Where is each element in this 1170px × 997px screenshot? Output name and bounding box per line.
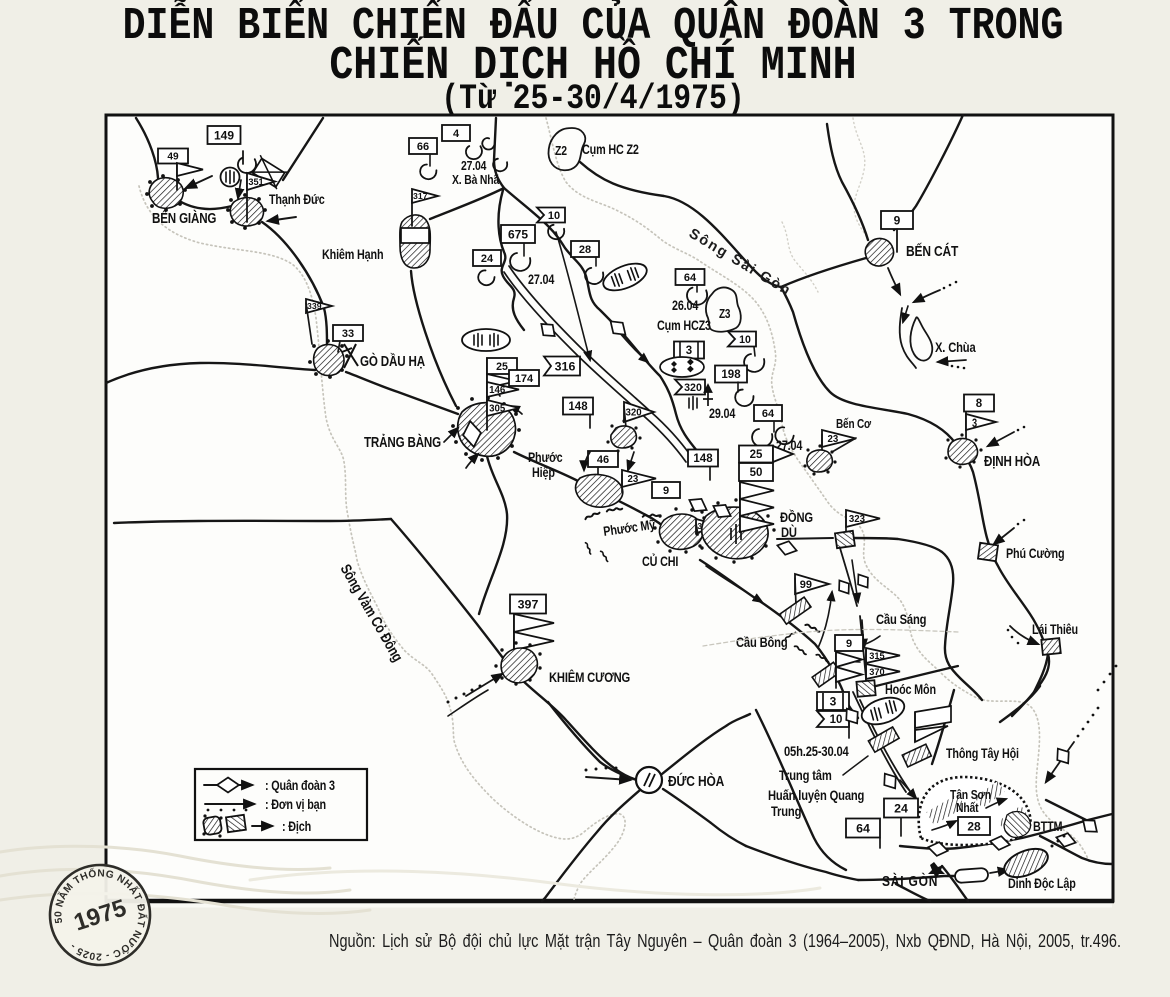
svg-text:X. Chùa: X. Chùa <box>935 340 977 355</box>
svg-text:397: 397 <box>518 598 539 612</box>
svg-text:24: 24 <box>894 802 908 816</box>
svg-text:24: 24 <box>481 253 494 265</box>
svg-text:Thạnh Đức: Thạnh Đức <box>269 192 325 207</box>
svg-text:SÀI GÒN: SÀI GÒN <box>882 873 938 890</box>
svg-text:149: 149 <box>214 128 234 142</box>
svg-text:Huấn luyện Quang: Huấn luyện Quang <box>768 788 864 803</box>
svg-text:TRẢNG BÀNG: TRẢNG BÀNG <box>364 434 441 451</box>
svg-text:27.04: 27.04 <box>461 159 487 173</box>
svg-text:8: 8 <box>976 398 983 410</box>
svg-text:Thông Tây Hội: Thông Tây Hội <box>946 746 1019 761</box>
svg-text:BẾN GIÀNG: BẾN GIÀNG <box>152 210 216 227</box>
svg-text:Dinh Độc Lập: Dinh Độc Lập <box>1008 876 1076 891</box>
svg-text:Phú Cường: Phú Cường <box>1006 546 1064 561</box>
svg-text:148: 148 <box>693 453 713 465</box>
svg-text:23: 23 <box>628 474 639 485</box>
svg-text:3: 3 <box>830 694 837 708</box>
svg-text:370: 370 <box>869 667 884 677</box>
svg-text:Cụm HCZ3: Cụm HCZ3 <box>657 318 711 333</box>
svg-text:4: 4 <box>453 128 460 140</box>
svg-text:ĐỒNG: ĐỒNG <box>780 509 813 526</box>
svg-text:Trung tâm: Trung tâm <box>779 768 832 783</box>
svg-text:(Từ 25-30/4/1975): (Từ 25-30/4/1975) <box>441 79 744 119</box>
svg-text:: Quân đoàn 3: : Quân đoàn 3 <box>265 778 335 793</box>
svg-text:X. Bà Nhã: X. Bà Nhã <box>452 173 500 187</box>
svg-text:Phước: Phước <box>528 450 563 465</box>
svg-text:49: 49 <box>167 152 179 163</box>
svg-text:27.04: 27.04 <box>528 272 555 287</box>
svg-text:64: 64 <box>684 272 697 284</box>
svg-text:BẾN CÁT: BẾN CÁT <box>906 243 959 260</box>
svg-text:ĐỊNH HÒA: ĐỊNH HÒA <box>984 453 1041 470</box>
svg-text:ĐỨC HÒA: ĐỨC HÒA <box>668 773 724 790</box>
svg-text:10: 10 <box>739 334 751 346</box>
svg-text:Lái Thiêu: Lái Thiêu <box>1032 622 1078 637</box>
svg-text:64: 64 <box>856 822 870 836</box>
svg-text:26.04: 26.04 <box>672 298 699 313</box>
svg-text:323: 323 <box>849 514 866 525</box>
svg-text:339: 339 <box>307 301 322 311</box>
svg-text:174: 174 <box>515 373 534 385</box>
svg-text:Cầu Sáng: Cầu Sáng <box>876 612 926 627</box>
svg-text:CỦ CHI: CỦ CHI <box>642 553 678 570</box>
svg-text:9: 9 <box>663 485 669 497</box>
svg-text:9: 9 <box>894 213 901 227</box>
svg-text:320: 320 <box>684 382 702 394</box>
svg-text:: Địch: : Địch <box>282 819 311 834</box>
svg-text:315: 315 <box>869 651 884 661</box>
svg-text:29.04: 29.04 <box>709 406 736 421</box>
svg-text:05h.25-30.04: 05h.25-30.04 <box>784 744 849 759</box>
svg-text:KHIÊM CƯƠNG: KHIÊM CƯƠNG <box>549 669 630 686</box>
svg-text:Hoóc Môn: Hoóc Môn <box>885 682 936 697</box>
svg-text:Trung: Trung <box>771 804 801 819</box>
svg-text:9: 9 <box>846 638 852 650</box>
svg-text:316: 316 <box>555 360 576 374</box>
svg-text:351: 351 <box>248 177 263 187</box>
svg-text:Nhất: Nhất <box>956 801 979 815</box>
svg-text:99: 99 <box>800 579 812 591</box>
svg-text:Z2: Z2 <box>555 144 567 158</box>
svg-text:Khiêm Hạnh: Khiêm Hạnh <box>322 247 383 262</box>
svg-text:675: 675 <box>508 227 528 241</box>
svg-text:33: 33 <box>342 328 354 340</box>
svg-text:3: 3 <box>686 345 692 357</box>
svg-text:25: 25 <box>496 361 508 373</box>
svg-text:Bến Cơ: Bến Cơ <box>836 418 872 431</box>
svg-text:146: 146 <box>489 385 506 396</box>
svg-text:Z3: Z3 <box>719 308 730 321</box>
svg-text:198: 198 <box>721 369 741 381</box>
svg-text:BTTM: BTTM <box>1033 819 1062 834</box>
svg-text:Nguồn: Lịch sử Bộ đội chủ lực: Nguồn: Lịch sử Bộ đội chủ lực Mặt trận T… <box>329 931 1121 951</box>
svg-text:317: 317 <box>413 191 428 201</box>
svg-text:23: 23 <box>828 434 839 445</box>
svg-text:10: 10 <box>548 210 560 222</box>
svg-text:10: 10 <box>830 714 843 726</box>
svg-text:305: 305 <box>489 404 506 415</box>
svg-text:28: 28 <box>579 244 591 256</box>
svg-text:148: 148 <box>568 401 588 413</box>
svg-text:25: 25 <box>750 449 763 461</box>
svg-text:28: 28 <box>967 819 981 833</box>
svg-text:Cụm HC Z2: Cụm HC Z2 <box>582 142 639 157</box>
svg-text:: Đơn vị bạn: : Đơn vị bạn <box>265 797 326 812</box>
svg-text:3: 3 <box>972 418 977 430</box>
svg-text:66: 66 <box>417 141 429 153</box>
svg-text:46: 46 <box>597 454 609 466</box>
svg-text:64: 64 <box>762 408 775 420</box>
svg-text:320: 320 <box>626 408 642 419</box>
svg-text:GÒ DẦU HẠ: GÒ DẦU HẠ <box>360 353 426 370</box>
svg-text:50: 50 <box>750 467 763 479</box>
svg-text:Hiệp: Hiệp <box>532 465 555 480</box>
